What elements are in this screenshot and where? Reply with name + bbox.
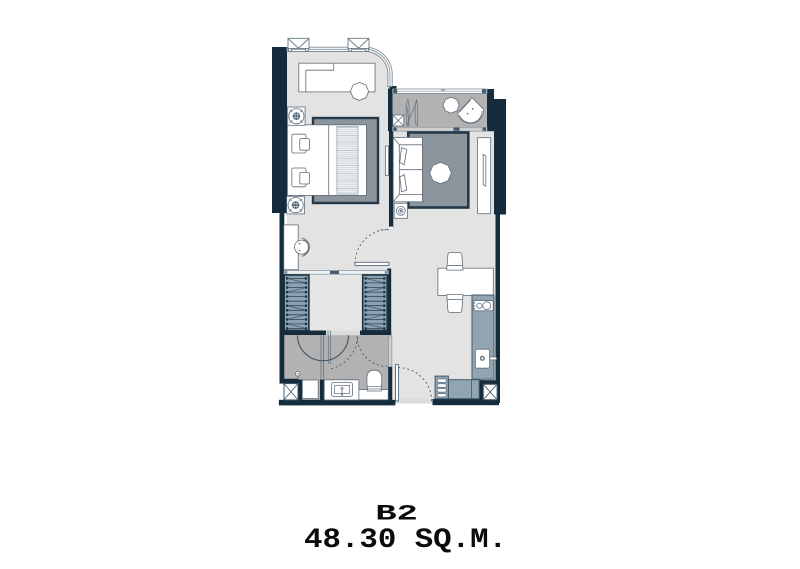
- svg-text:48.30 SQ.M.: 48.30 SQ.M.: [304, 525, 507, 556]
- svg-text:B2: B2: [375, 501, 418, 527]
